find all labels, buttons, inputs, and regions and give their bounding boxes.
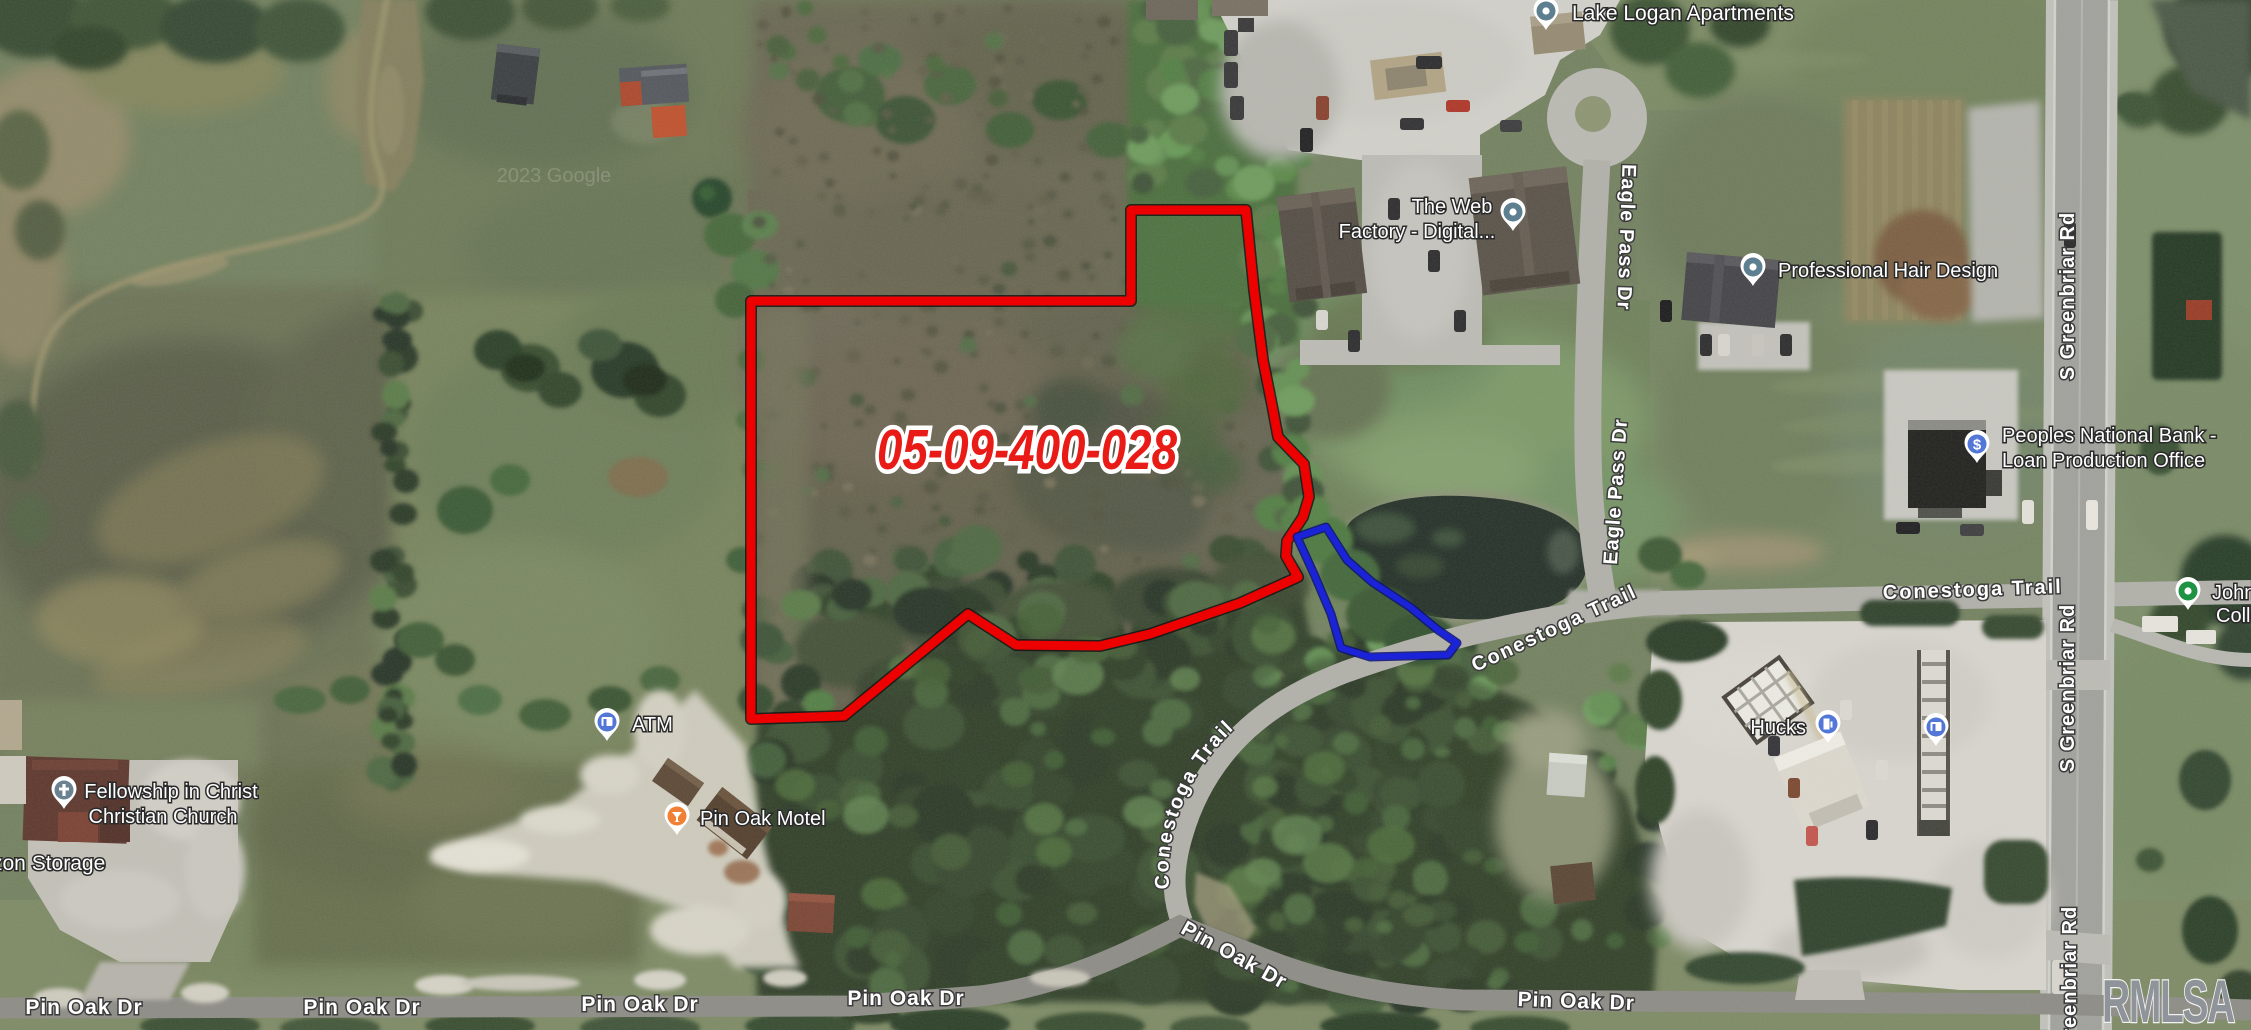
- svg-text:Lake Logan Apartments: Lake Logan Apartments: [1572, 2, 1794, 25]
- svg-text:Pin Oak Dr: Pin Oak Dr: [581, 993, 698, 1016]
- svg-text:Peoples National Bank -: Peoples National Bank -: [2002, 425, 2217, 447]
- svg-text:ATM: ATM: [632, 714, 673, 736]
- svg-text:Pin Oak Dr: Pin Oak Dr: [847, 987, 964, 1010]
- svg-text:John: John: [2212, 582, 2251, 604]
- svg-text:$: $: [1973, 437, 1982, 454]
- svg-text:S Greenbriar Rd: S Greenbriar Rd: [2057, 212, 2079, 380]
- svg-text:Christian Church: Christian Church: [89, 806, 238, 828]
- svg-text:Pin Oak Dr: Pin Oak Dr: [25, 996, 142, 1019]
- svg-text:Pin Oak Dr: Pin Oak Dr: [303, 996, 420, 1019]
- svg-text:Fellowship in Christ: Fellowship in Christ: [84, 781, 258, 803]
- svg-text:Professional Hair Design: Professional Hair Design: [1778, 260, 1998, 282]
- svg-text:Pin Oak Dr: Pin Oak Dr: [1517, 988, 1635, 1015]
- svg-text:Hucks: Hucks: [1750, 717, 1806, 739]
- svg-text:S Greenbriar Rd: S Greenbriar Rd: [2057, 604, 2079, 772]
- svg-text:Loan Production Office: Loan Production Office: [2002, 450, 2205, 472]
- svg-text:Colle: Colle: [2216, 605, 2251, 627]
- svg-text:05-09-400-028: 05-09-400-028: [877, 418, 1177, 482]
- svg-text:Pin Oak Motel: Pin Oak Motel: [700, 808, 826, 830]
- svg-text:2023 Google: 2023 Google: [497, 165, 612, 187]
- svg-text:RMLSA: RMLSA: [2102, 968, 2234, 1030]
- svg-text:S Greenbriar Rd: S Greenbriar Rd: [2059, 906, 2081, 1030]
- svg-text:zon Storage: zon Storage: [0, 852, 105, 875]
- svg-text:The Web: The Web: [1412, 196, 1493, 218]
- svg-text:Factory - Digital...: Factory - Digital...: [1339, 221, 1496, 243]
